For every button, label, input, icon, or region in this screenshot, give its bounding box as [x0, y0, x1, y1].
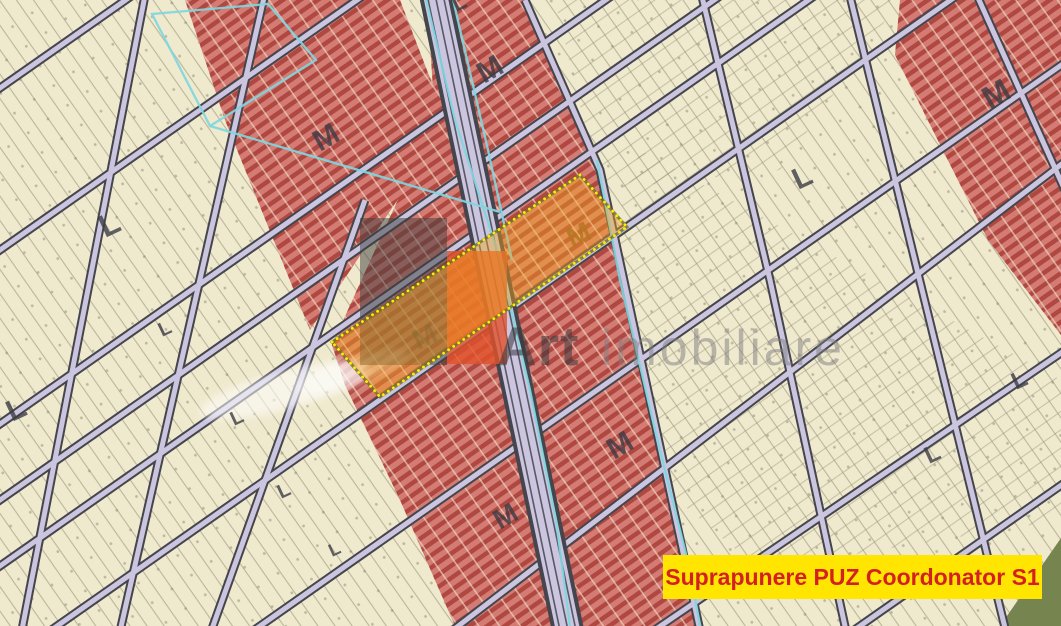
suprapunere-puz-label: Suprapunere PUZ Coordonator S1	[663, 555, 1042, 599]
zoning-map-canvas: MMMMMMMLLLLLLLLLL	[0, 0, 1061, 626]
zoning-map: MMMMMMMLLLLLLLLLL Art imobiliare Suprapu…	[0, 0, 1061, 626]
